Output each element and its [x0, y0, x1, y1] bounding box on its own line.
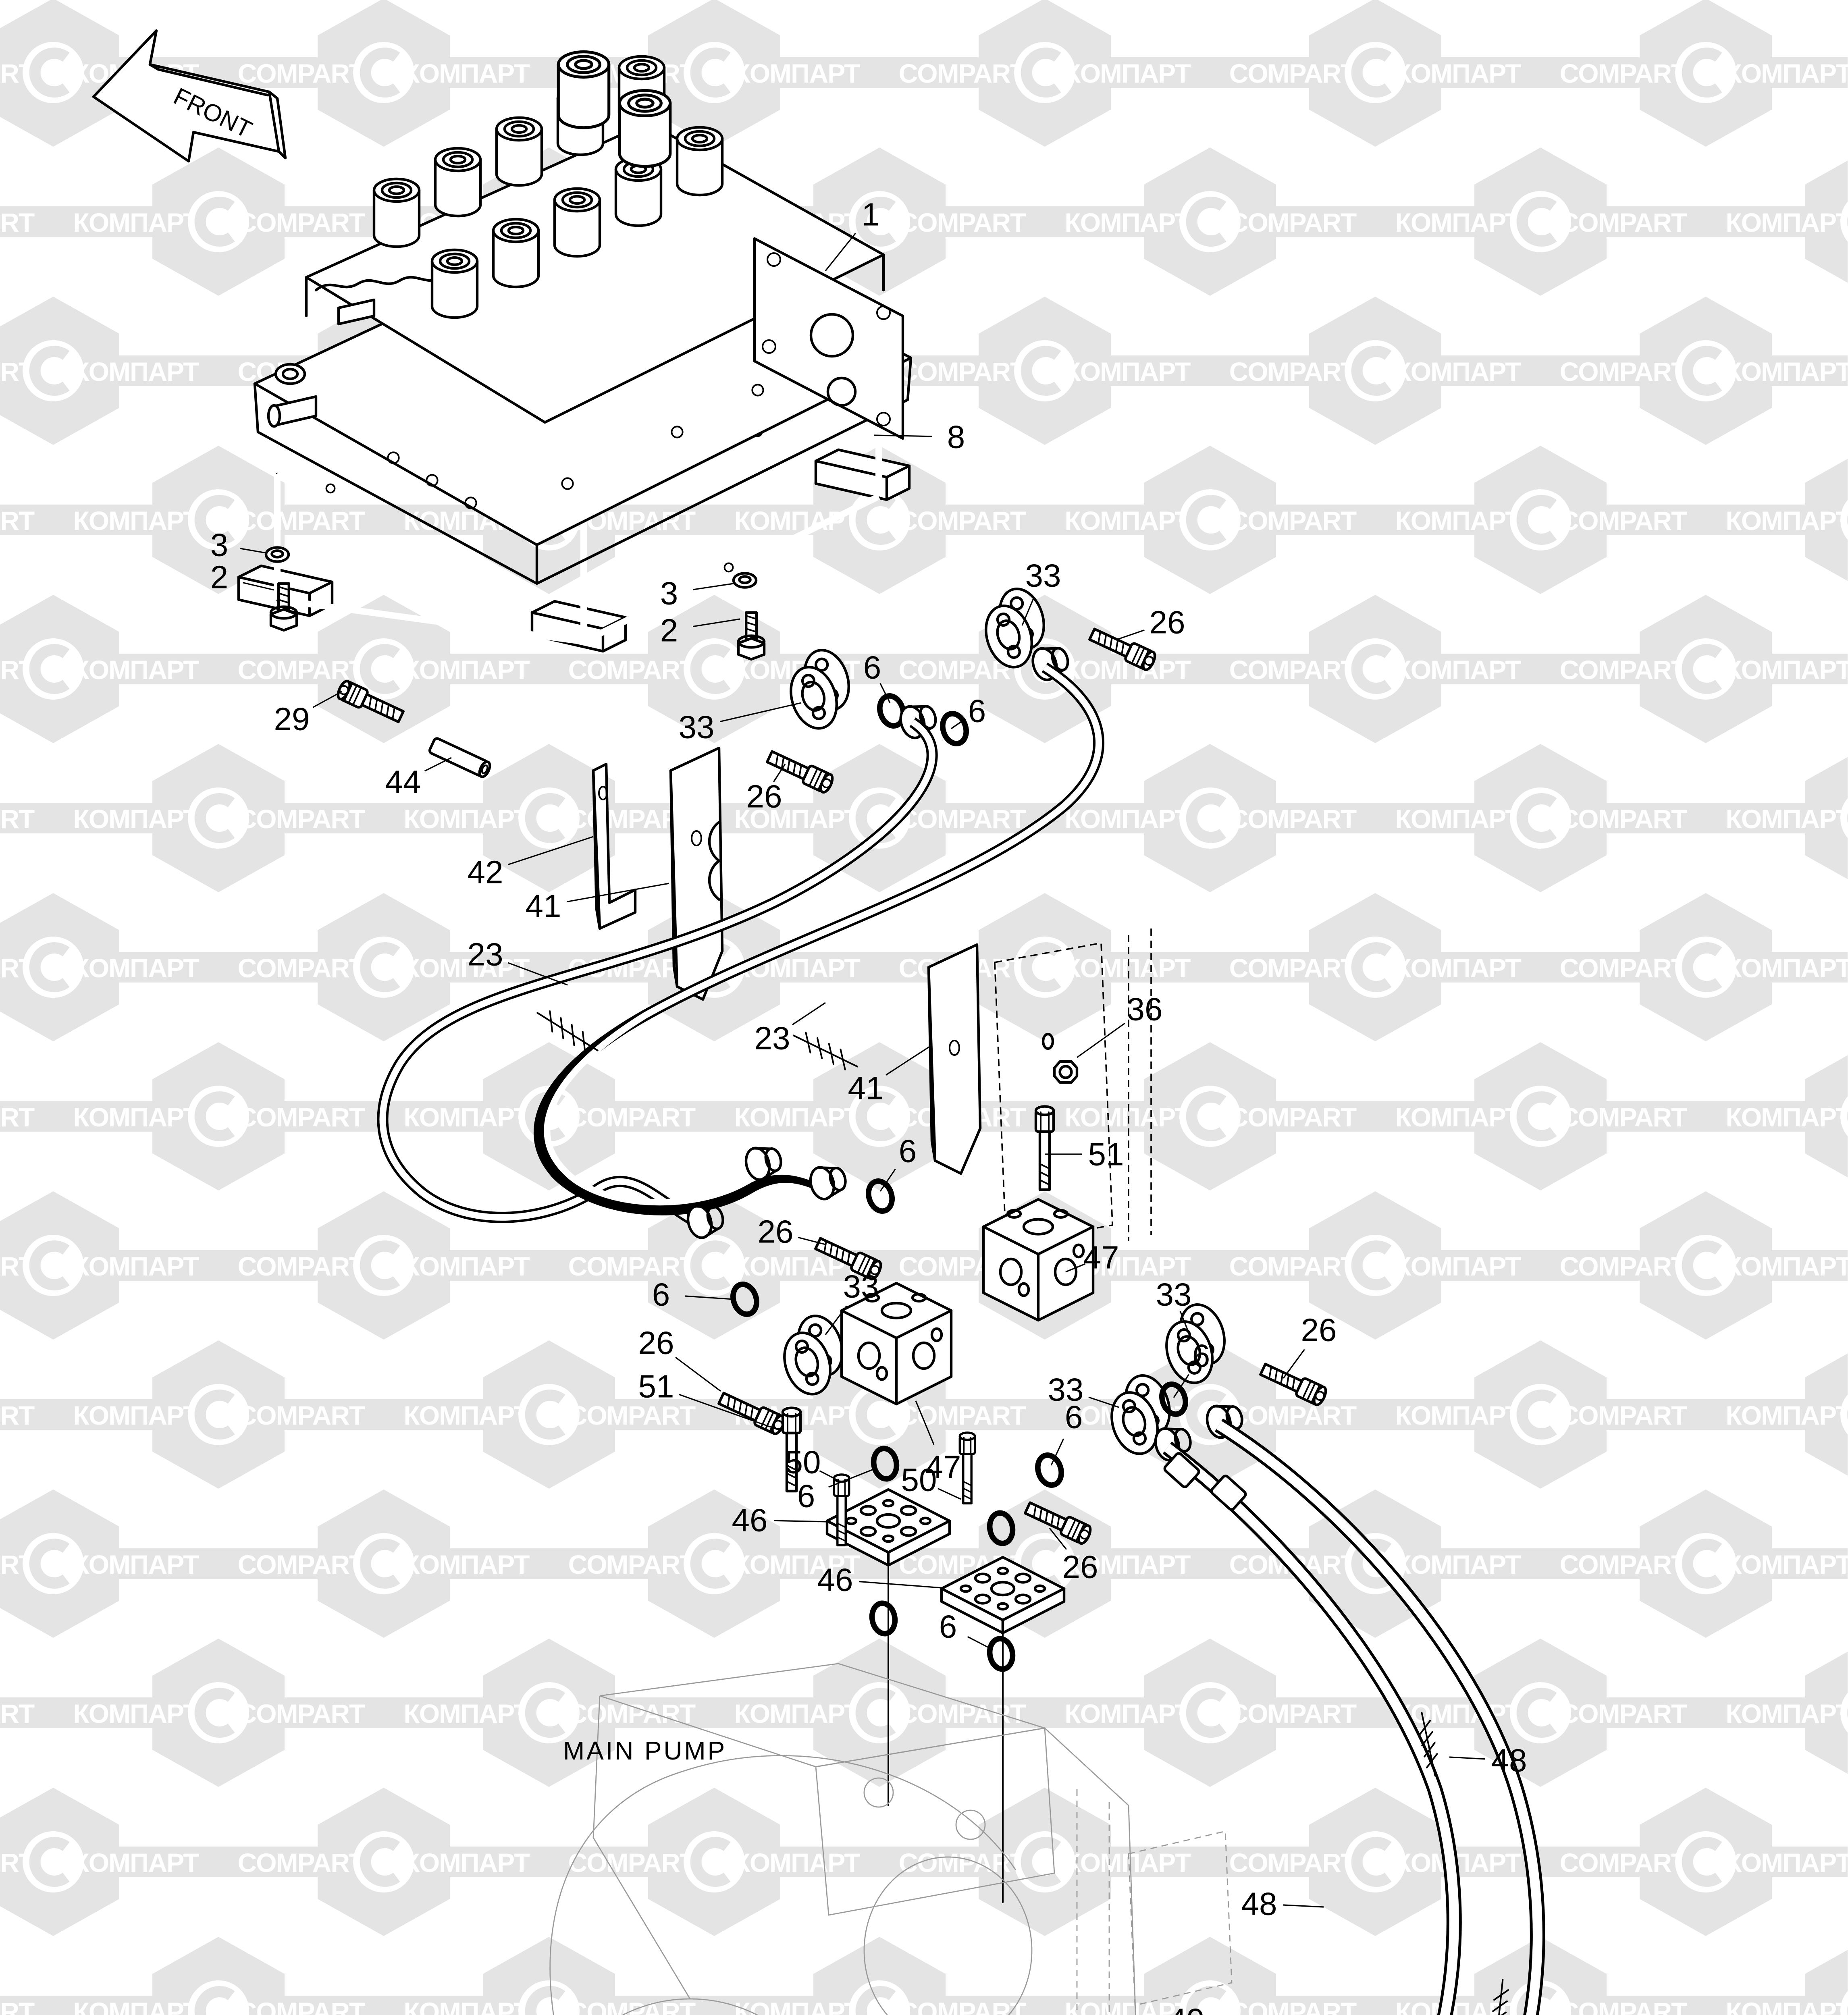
watermark-word: КОМПАРТ [1395, 1997, 1521, 2015]
watermark-word: КОМПАРТ [1725, 1251, 1848, 1281]
part-label: 1 [862, 197, 880, 233]
watermark-word: КОМПАРТ [1725, 58, 1848, 88]
watermark-word: КОМПАРТ [1395, 1102, 1521, 1132]
watermark-word: КОМПАРТ [403, 58, 530, 88]
o-ring-6 [939, 710, 970, 747]
o-ring-6 [870, 1602, 897, 1636]
part-label: 26 [758, 1214, 794, 1250]
watermark-word: КОМПАРТ [1064, 804, 1191, 834]
block-47 [983, 1199, 1093, 1320]
part-label: 41 [848, 1070, 884, 1106]
part-label: 33 [843, 1269, 879, 1305]
watermark-word: COMPART [0, 1997, 35, 2015]
part-label: 8 [947, 419, 965, 455]
watermark-word: COMPART [238, 1997, 365, 2015]
watermark-word: КОМПАРТ [1395, 58, 1521, 88]
parts-diagram: COMPARTКОМПАРТCOMPARTКОМПАРТCOMPARTКОМПА… [0, 0, 1848, 2015]
part-label: 44 [385, 764, 421, 800]
watermark-word: COMPART [1229, 804, 1357, 834]
watermark-word: КОМПАРТ [1725, 1102, 1848, 1132]
watermark-word: КОМПАРТ [1395, 655, 1521, 685]
watermark-word: КОМПАРТ [734, 1997, 860, 2015]
part-label: 6 [863, 650, 881, 686]
watermark-word: COMPART [238, 804, 365, 834]
watermark-word: КОМПАРТ [1395, 804, 1521, 834]
watermark-word: COMPART [1229, 655, 1357, 685]
part-label: 33 [1025, 558, 1061, 594]
part-label: 51 [638, 1369, 674, 1404]
watermark-word: COMPART [899, 58, 1026, 88]
watermark-word: COMPART [1229, 208, 1357, 237]
watermark-word: КОМПАРТ [403, 1550, 530, 1579]
watermark-word: КОМПАРТ [73, 1550, 199, 1579]
watermark-word: COMPART [238, 1400, 365, 1430]
front-arrow: FRONT [94, 31, 285, 161]
pin-44 [429, 737, 492, 779]
watermark-word: COMPART [1560, 58, 1687, 88]
part-label: 6 [968, 693, 986, 729]
leader-line [859, 1582, 942, 1588]
part-label: 26 [1150, 604, 1185, 640]
part-label: 2 [660, 613, 678, 648]
watermark-word: КОМПАРТ [1725, 1699, 1848, 1728]
watermark-word: КОМПАРТ [1064, 1102, 1191, 1132]
watermark-word: COMPART [568, 1400, 696, 1430]
leader-line [938, 1489, 961, 1499]
watermark-word: КОМПАРТ [734, 506, 860, 536]
watermark-word: КОМПАРТ [1064, 357, 1191, 386]
part-label: 26 [638, 1325, 674, 1361]
watermark-word: КОМПАРТ [1725, 1997, 1848, 2015]
watermark-word: КОМПАРТ [1725, 655, 1848, 685]
part-label: 48 [1241, 1886, 1277, 1922]
watermark-word: COMPART [899, 506, 1026, 536]
watermark-word: КОМПАРТ [403, 1400, 530, 1430]
watermark-word: КОМПАРТ [1725, 1848, 1848, 1878]
leader-line [792, 1003, 825, 1025]
page: COMPARTКОМПАРТCOMPARTКОМПАРТCOMPARTКОМПА… [0, 0, 1848, 2015]
watermark-word: COMPART [238, 1251, 365, 1281]
watermark-word: КОМПАРТ [73, 804, 199, 834]
watermark-word: КОМПАРТ [1725, 804, 1848, 834]
watermark-word: COMPART [0, 1699, 35, 1728]
watermark-word: COMPART [899, 357, 1026, 386]
part-label: 6 [899, 1133, 917, 1169]
watermark-word: КОМПАРТ [73, 953, 199, 983]
part-label: 47 [1083, 1240, 1119, 1275]
watermark-word: COMPART [238, 1550, 365, 1579]
part-label: 48 [1491, 1743, 1527, 1778]
watermark-word: КОМПАРТ [403, 1251, 530, 1281]
watermark-word: КОМПАРТ [1725, 208, 1848, 237]
watermark-word: COMPART [0, 804, 35, 834]
watermark-word: КОМПАРТ [734, 1848, 860, 1878]
watermark-word: COMPART [238, 58, 365, 88]
leader-line [1283, 1349, 1305, 1378]
watermark-word: COMPART [899, 1699, 1026, 1728]
leader-line [774, 1521, 827, 1522]
part-label: 41 [526, 888, 561, 924]
watermark-word: КОМПАРТ [1395, 357, 1521, 386]
watermark-word: COMPART [1560, 1997, 1687, 2015]
o-ring-6 [1034, 1452, 1065, 1488]
part-label: 50 [785, 1444, 821, 1480]
leader-line [874, 435, 932, 436]
watermark-word: COMPART [238, 208, 365, 237]
watermark-word: COMPART [1229, 1251, 1357, 1281]
part-label: 33 [1156, 1277, 1192, 1313]
watermark-word: COMPART [1560, 1550, 1687, 1579]
watermark-word: КОМПАРТ [73, 1102, 199, 1132]
watermark-word: КОМПАРТ [1725, 1550, 1848, 1579]
watermark-word: COMPART [568, 1251, 696, 1281]
watermark-word: КОМПАРТ [403, 1699, 530, 1728]
watermark-word: COMPART [1560, 1400, 1687, 1430]
leader-line [1283, 1905, 1324, 1907]
part-label: 3 [660, 575, 678, 611]
watermark-word: КОМПАРТ [1725, 357, 1848, 386]
watermark-word: КОМПАРТ [1064, 953, 1191, 983]
watermark-word: COMPART [1560, 1848, 1687, 1878]
part-label: 3 [210, 527, 229, 563]
leader-line [1077, 1023, 1125, 1057]
watermark-word: COMPART [1229, 506, 1357, 536]
watermark-word: COMPART [238, 953, 365, 983]
watermark-word: КОМПАРТ [73, 506, 199, 536]
watermark-word: COMPART [1560, 1102, 1687, 1132]
watermark-word: COMPART [1560, 357, 1687, 386]
watermark-word: КОМПАРТ [734, 58, 860, 88]
watermark-word: КОМПАРТ [1064, 1848, 1191, 1878]
watermark-word: КОМПАРТ [1395, 1550, 1521, 1579]
watermark-word: COMPART [0, 1400, 35, 1430]
watermark-word: COMPART [1229, 953, 1357, 983]
part-label: 42 [468, 854, 503, 890]
watermark-word: КОМПАРТ [73, 208, 199, 237]
watermark-word: COMPART [1229, 357, 1357, 386]
watermark-word: COMPART [568, 1699, 696, 1728]
watermark-word: COMPART [1560, 1251, 1687, 1281]
watermark-word: COMPART [1560, 953, 1687, 983]
watermark-word: COMPART [238, 1102, 365, 1132]
watermark-word: КОМПАРТ [1395, 1251, 1521, 1281]
watermark-word: КОМПАРТ [1064, 506, 1191, 536]
part-label: 6 [652, 1277, 670, 1313]
part-label: 6 [1192, 1338, 1210, 1374]
watermark-word: КОМПАРТ [1064, 58, 1191, 88]
part-label: 23 [755, 1020, 790, 1056]
watermark-word: COMPART [568, 1848, 696, 1878]
watermark-word: COMPART [899, 1997, 1026, 2015]
watermark-word: КОМПАРТ [403, 655, 530, 685]
watermark-word: КОМПАРТ [403, 804, 530, 834]
watermark-word: КОМПАРТ [73, 1997, 199, 2015]
watermark-word: КОМПАРТ [73, 357, 199, 386]
watermark-word: КОМПАРТ [1725, 953, 1848, 983]
part-label: 6 [797, 1478, 815, 1514]
watermark-word: КОМПАРТ [73, 1848, 199, 1878]
watermark-word: COMPART [1229, 1400, 1357, 1430]
watermark-word: COMPART [238, 1848, 365, 1878]
watermark-word: COMPART [1229, 1997, 1357, 2015]
watermark-word: COMPART [1560, 506, 1687, 536]
watermark-word: COMPART [899, 804, 1026, 834]
watermark-word: COMPART [1229, 1699, 1357, 1728]
watermark-word: COMPART [238, 1699, 365, 1728]
watermark-word: КОМПАРТ [1395, 208, 1521, 237]
watermark-word: КОМПАРТ [73, 1699, 199, 1728]
part-label: 23 [468, 937, 503, 972]
part-label: 6 [939, 1609, 957, 1645]
part-label: 51 [1088, 1136, 1124, 1172]
part-label: 50 [901, 1462, 937, 1498]
watermark-word: КОМПАРТ [403, 1848, 530, 1878]
watermark-word: COMPART [1229, 58, 1357, 88]
watermark-word: КОМПАРТ [1395, 953, 1521, 983]
part-label: 2 [210, 559, 229, 595]
part-label: 26 [746, 779, 782, 814]
leader-line [968, 1637, 992, 1649]
part-label: 49 [1169, 2002, 1205, 2015]
watermark-word: КОМПАРТ [1725, 506, 1848, 536]
watermark-word: КОМПАРТ [1064, 1699, 1191, 1728]
watermark-word: COMPART [1229, 1848, 1357, 1878]
part-label: 36 [1127, 991, 1163, 1027]
watermark-word: COMPART [0, 208, 35, 237]
bolt-51 [1036, 1107, 1054, 1190]
part-label: 46 [732, 1502, 768, 1538]
watermark-word: COMPART [238, 506, 365, 536]
watermark-word: КОМПАРТ [1725, 1400, 1848, 1430]
watermark-word: COMPART [1229, 1102, 1357, 1132]
watermark-word: COMPART [568, 655, 696, 685]
watermark-word: КОМПАРТ [403, 1102, 530, 1132]
watermark-word: КОМПАРТ [1064, 208, 1191, 237]
o-ring-6 [987, 1637, 1015, 1671]
watermark-word: КОМПАРТ [73, 655, 199, 685]
watermark-word: КОМПАРТ [1395, 1400, 1521, 1430]
watermark-word: КОМПАРТ [73, 1400, 199, 1430]
control-valve-assembly [255, 52, 911, 584]
leader-line [425, 758, 451, 771]
watermark-word: КОМПАРТ [403, 953, 530, 983]
watermark-word: КОМПАРТ [734, 1102, 860, 1132]
watermark-word: COMPART [0, 1102, 35, 1132]
watermark-word: COMPART [1560, 655, 1687, 685]
watermark-word: COMPART [1560, 804, 1687, 834]
watermark-word: COMPART [568, 1550, 696, 1579]
part-label: 33 [679, 709, 715, 745]
leader-line [676, 1357, 721, 1391]
leader-line [1116, 630, 1144, 640]
watermark-word: COMPART [568, 1102, 696, 1132]
bolt-50 [960, 1433, 975, 1503]
part-label: 46 [817, 1562, 853, 1598]
part-label: 29 [274, 701, 310, 737]
part-label: 26 [1301, 1312, 1337, 1348]
main-pump-label: MAIN PUMP [563, 1736, 727, 1765]
watermark-word: КОМПАРТ [734, 1699, 860, 1728]
watermark-word: КОМПАРТ [73, 1251, 199, 1281]
watermark-word: КОМПАРТ [1395, 506, 1521, 536]
watermark-word: COMPART [0, 506, 35, 536]
watermark-word: КОМПАРТ [403, 1997, 530, 2015]
watermark-word: COMPART [1560, 208, 1687, 237]
part-label: 26 [1062, 1549, 1098, 1585]
leader-line [1449, 1757, 1485, 1759]
part-label: 6 [1065, 1399, 1083, 1435]
watermark-layer: COMPARTКОМПАРТCOMPARTКОМПАРТCOMPARTКОМПА… [0, 0, 1848, 2015]
watermark-word: COMPART [899, 208, 1026, 237]
watermark-word: COMPART [1560, 1699, 1687, 1728]
